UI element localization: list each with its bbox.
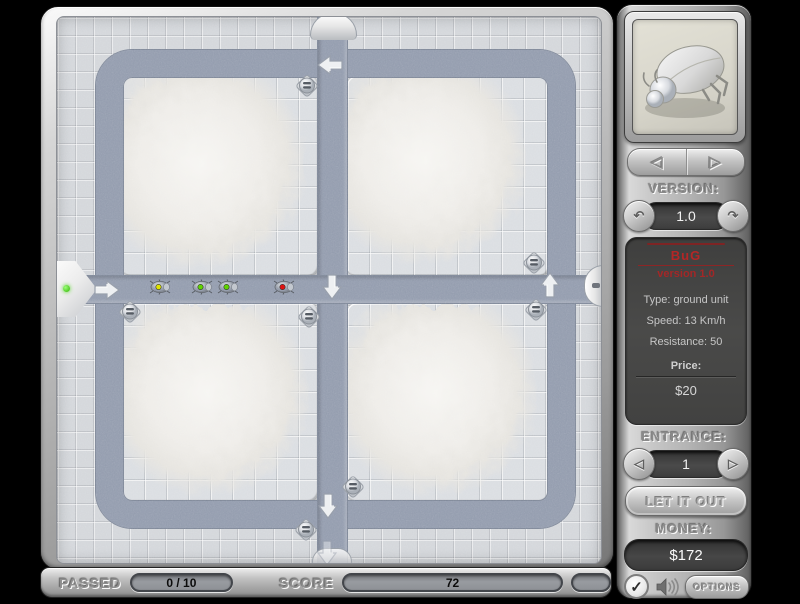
entrance-selector: 1 ◁ ▷ [625, 447, 745, 479]
turret[interactable] [294, 73, 320, 99]
entrance-top-dome [310, 16, 357, 40]
entrance-label: ENTRANCE: [617, 429, 751, 444]
undo-arrow-icon: ↶ [634, 208, 645, 224]
unit-speed: Speed: 13 Km/h [626, 315, 746, 327]
right-triangle-icon: ▷ [709, 153, 721, 171]
direction-arrow-down-icon [317, 492, 339, 520]
bug-enemy [191, 279, 213, 295]
direction-arrow-right-icon [93, 279, 121, 301]
unit-name: BuG [626, 248, 746, 263]
price-divider [636, 376, 736, 377]
entrance-prev-button[interactable]: ◁ [623, 448, 655, 480]
unit-portrait-frame [624, 11, 746, 143]
turret[interactable] [296, 304, 322, 330]
info-top-rule [647, 243, 725, 245]
let-it-out-label: LET IT OUT [646, 494, 727, 509]
version-label: VERSION: [617, 181, 751, 196]
bug-enemy [217, 279, 239, 295]
speaker-icon [655, 575, 681, 599]
price-value: $20 [626, 383, 746, 398]
entrance-value: 1 [682, 456, 690, 472]
money-display: $172 [624, 539, 748, 571]
money-label: MONEY: [617, 521, 751, 536]
confirm-toggle-button[interactable]: ✓ [624, 574, 649, 599]
score-label: SCORE [279, 575, 334, 591]
score-value: 72 [446, 576, 459, 590]
red-rule [638, 265, 734, 266]
next-unit-button[interactable]: ▷ [687, 149, 745, 175]
version-down-button[interactable]: ↶ [623, 200, 655, 232]
turret[interactable] [117, 299, 143, 325]
bug-portrait-image [633, 20, 737, 134]
unit-info-panel: BuG version 1.0 Type: ground unit Speed:… [625, 237, 747, 425]
unit-resistance: Resistance: 50 [626, 336, 746, 348]
version-up-button[interactable]: ↷ [717, 200, 749, 232]
hud-bar: PASSED 0 / 10 SCORE 72 [40, 567, 612, 598]
turret[interactable] [523, 297, 549, 323]
turret[interactable] [521, 250, 547, 276]
let-it-out-button[interactable]: LET IT OUT [625, 486, 747, 516]
version-value: 1.0 [676, 208, 695, 224]
prev-unit-button[interactable]: ◁ [628, 149, 687, 175]
price-label: Price: [626, 360, 746, 372]
entrance-next-button[interactable]: ▷ [717, 448, 749, 480]
passed-counter: 0 / 10 [130, 573, 234, 592]
passed-label: PASSED [59, 575, 122, 591]
game-window-frame [40, 6, 614, 570]
right-triangle-icon: ▷ [728, 456, 738, 472]
unit-nav: ◁ ▷ [627, 148, 745, 176]
bug-enemy [149, 279, 171, 295]
exit-slot-icon [592, 283, 600, 288]
left-triangle-icon: ◁ [634, 456, 644, 472]
options-button[interactable]: OPTIONS [685, 575, 749, 599]
redo-arrow-icon: ↷ [728, 208, 739, 224]
sound-toggle-button[interactable] [655, 575, 681, 599]
checkmark-icon: ✓ [630, 578, 643, 596]
turret[interactable] [293, 517, 319, 543]
score-counter: 72 [342, 573, 563, 592]
version-selector: 1.0 ↶ ↷ [625, 199, 745, 231]
options-label: OPTIONS [693, 582, 741, 592]
money-value: $172 [669, 547, 702, 564]
sidebar: ◁ ▷ VERSION: 1.0 ↶ ↷ BuG version 1.0 Typ… [616, 4, 752, 599]
entrance-green-light-icon [63, 285, 70, 292]
direction-arrow-down-icon [321, 273, 343, 301]
left-triangle-icon: ◁ [651, 153, 663, 171]
unit-portrait [632, 19, 738, 135]
bug-enemy [273, 279, 295, 295]
direction-arrow-left-icon [316, 54, 344, 76]
unit-version: version 1.0 [626, 268, 746, 280]
entrance-left-gate [56, 261, 97, 317]
unit-type: Type: ground unit [626, 294, 746, 306]
passed-value: 0 / 10 [166, 576, 196, 590]
game-board[interactable] [56, 16, 602, 564]
turret[interactable] [340, 474, 366, 500]
direction-arrow-down-icon [316, 539, 338, 564]
hud-extra-pill [571, 573, 611, 592]
